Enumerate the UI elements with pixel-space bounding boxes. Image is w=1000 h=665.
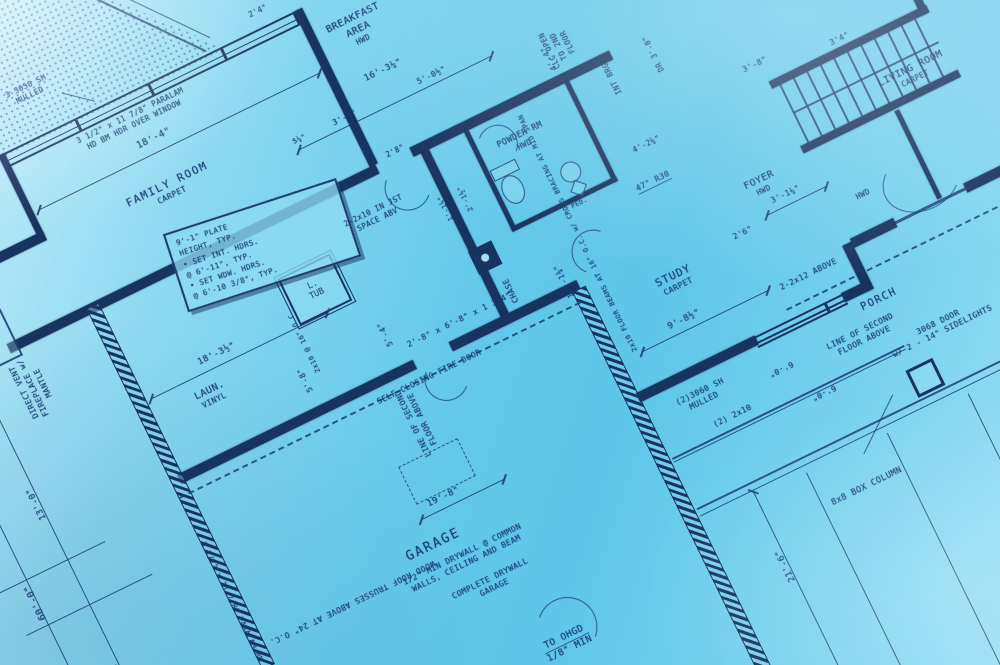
dim-4-2: 4'-2¼" — [631, 133, 662, 155]
note-line: 3068 DOOR — [887, 294, 990, 351]
note-roof-trusses: WOOD ROOF TRUSSES ABOVE AT 24" O.C. — [268, 557, 437, 646]
wall — [850, 218, 898, 248]
wall — [963, 122, 1000, 192]
blueprint-photo: FAMILY ROOM CARPET BREAKFAST AREA HWD PO… — [0, 0, 1000, 665]
dim-13-0: 13'-0" — [24, 485, 50, 522]
dim-text: 16'-3¼" — [363, 57, 405, 85]
note-hwd-tag: HWD — [854, 187, 872, 202]
dim-text: 4'-2¼" — [631, 133, 662, 155]
room-label-study: STUDY CARPET — [639, 254, 713, 307]
porch-step-line — [887, 433, 1000, 665]
note-cross-bracing: 2x10 FLOOR BEAMS AT 16" O.C. w/ CROSS BR… — [517, 113, 640, 353]
note-line: 2x10 FLOOR BEAMS AT 16" O.C. w/ CROSS BR… — [517, 113, 640, 353]
note-r30: 47" R30 — [634, 169, 672, 195]
dim-line-vertical — [0, 370, 121, 665]
dim-text: 16'-0¼" — [348, 117, 373, 154]
dim-2-6: 2'6" — [731, 224, 754, 242]
door-arc-front-door — [872, 134, 971, 225]
note-line: 47" R30 — [634, 169, 671, 194]
dim-18-4: 18'-4" — [135, 125, 173, 152]
dim-text: 2'-1½" — [456, 184, 476, 213]
dim-text: 2'8" — [384, 143, 406, 160]
note-dr-3-0: DR 3'-0" — [641, 34, 667, 74]
note-line: 8x8 BOX COLUMN — [830, 465, 904, 509]
note-line: DR 3'-0" — [641, 34, 667, 74]
dim-line-vertical — [0, 390, 145, 665]
dim-3-8: 3'-8" — [741, 55, 769, 76]
dim-text: 5'-4" — [375, 320, 396, 348]
dim-text: 60'-0" — [21, 582, 50, 622]
porch-step-line — [968, 393, 1000, 663]
dim-text: 2'6" — [731, 224, 754, 242]
floor-plan: FAMILY ROOM CARPET BREAKFAST AREA HWD PO… — [0, 0, 1000, 665]
note-line-second-floor-porch: LINE OF SECOND FLOOR ABOVE — [825, 311, 900, 362]
dim-2-1: 2'-1½" — [456, 184, 476, 213]
dim-60-0: 60'-0" — [21, 582, 50, 622]
dim-text: 2'4" — [247, 3, 269, 20]
dim-text: 21'-6" — [773, 547, 799, 584]
room-label-breakfast: BREAKFAST AREA HWD — [312, 0, 403, 63]
hatched-wall-garage-left — [88, 304, 274, 665]
porch-step-line — [806, 472, 934, 665]
note-joist-space: 2-2x10 IN JST SPACE ABV — [342, 192, 408, 238]
dim-2-8: 2'8" — [384, 143, 406, 160]
note-front-door-3068: 3068 DOOR w/ 2 - 14" SIDELIGHTS — [887, 294, 995, 361]
extension-line — [0, 541, 105, 599]
dim-text: 3'-8" — [741, 55, 769, 76]
dim-21-6: 21'-6" — [773, 547, 799, 584]
note-line: HWD — [854, 187, 872, 202]
wall — [0, 153, 45, 239]
dim-5q: 5¼" — [291, 133, 307, 147]
wall — [974, 0, 1000, 148]
dim-text: 6'-0" — [767, 358, 795, 379]
dim-16-3: 16'-3¼" — [363, 57, 405, 85]
extension-line — [26, 574, 152, 636]
dim-text: 13'-0" — [24, 485, 50, 522]
dim-2-4: 2'4" — [247, 3, 269, 20]
note-int-brg: INT BRG — [600, 61, 624, 96]
note-fireplace: DIRECT VENT FIREPLACE w/ MANTLE — [6, 352, 61, 422]
dim-line-vertical — [753, 491, 886, 665]
note-line: WOOD ROOF TRUSSES ABOVE AT 24" O.C. — [268, 557, 437, 646]
note-line: INT BRG — [600, 61, 624, 96]
note-mulled-3060: (2)3060 SH MULLED — [674, 376, 730, 418]
wall — [177, 360, 417, 484]
dim-5-4: 5'-4" — [375, 320, 396, 348]
note-box-column: 8x8 BOX COLUMN — [830, 465, 904, 509]
dim-16-0: 16'-0¼" — [348, 117, 373, 154]
dim-6-0: 6'-0" — [767, 358, 795, 379]
dim-text: 18'-4" — [135, 125, 173, 152]
dim-text: 5¼" — [291, 133, 307, 147]
